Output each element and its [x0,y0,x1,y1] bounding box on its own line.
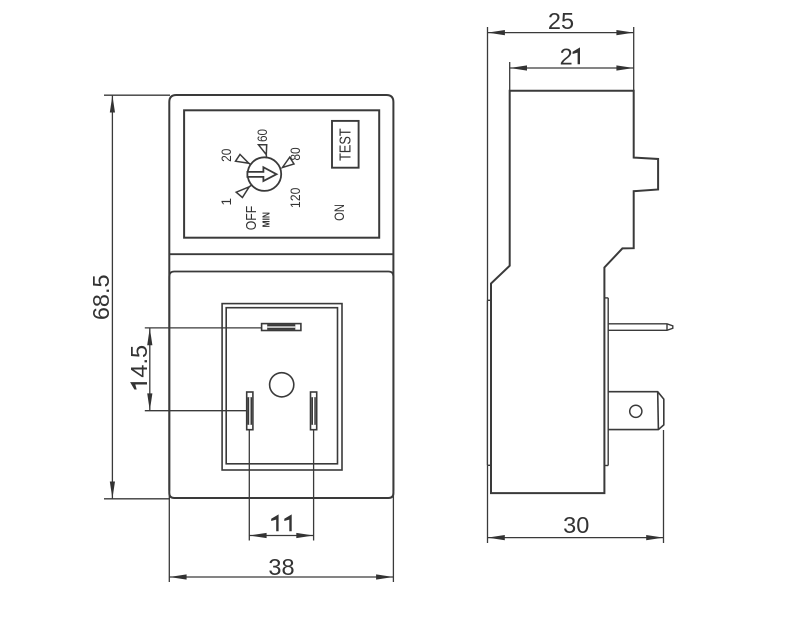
svg-text:80: 80 [287,147,303,160]
svg-text:68.5: 68.5 [88,274,114,320]
svg-text:60: 60 [254,129,270,142]
svg-text:MIN: MIN [261,212,272,228]
svg-text:ON: ON [331,204,347,221]
svg-text:1: 1 [219,198,234,206]
svg-text:38: 38 [268,554,294,580]
svg-text:30: 30 [563,512,589,538]
svg-text:120: 120 [287,187,303,207]
svg-text:TEST: TEST [338,128,355,161]
svg-text:4.5: 4.5 [126,345,152,378]
svg-text:OFF: OFF [243,206,260,231]
svg-text:20: 20 [218,148,234,161]
svg-text:2: 2 [560,43,573,69]
svg-text:25: 25 [548,8,574,34]
